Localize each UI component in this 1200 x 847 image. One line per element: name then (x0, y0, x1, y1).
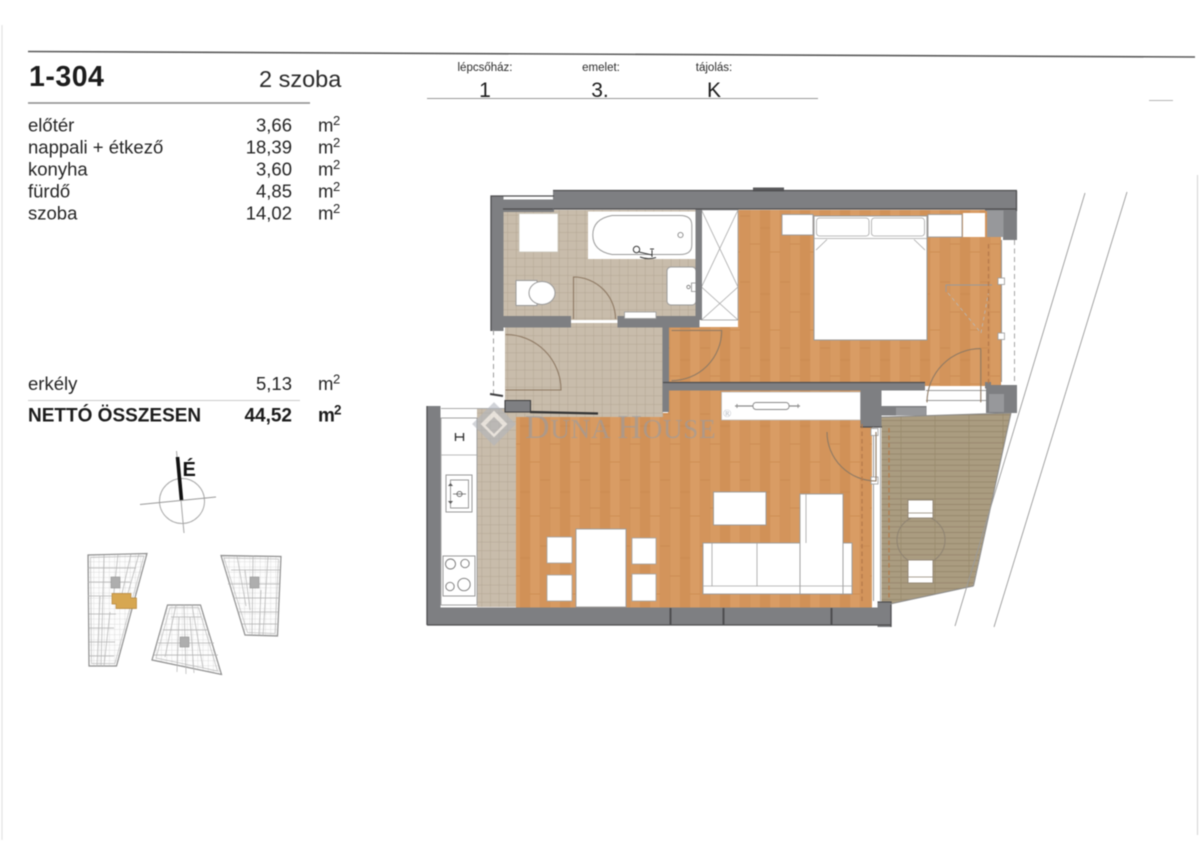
svg-text:m: m (318, 203, 333, 224)
svg-text:5,13: 5,13 (256, 373, 292, 394)
svg-text:18,39: 18,39 (246, 137, 292, 158)
svg-text:2: 2 (333, 372, 340, 387)
svg-text:3,66: 3,66 (256, 115, 292, 136)
svg-text:emelet:: emelet: (582, 62, 620, 74)
svg-text:tájolás:: tájolás: (696, 62, 732, 74)
svg-text:m: m (318, 159, 333, 180)
svg-text:44,52: 44,52 (244, 406, 292, 427)
svg-text:erkély: erkély (28, 373, 78, 394)
svg-text:DUNA HOUSE: DUNA HOUSE (525, 409, 716, 446)
svg-text:előtér: előtér (28, 115, 74, 136)
svg-text:1-304: 1-304 (29, 61, 104, 93)
svg-text:3,60: 3,60 (256, 159, 292, 180)
svg-text:É: É (183, 458, 196, 481)
svg-text:m: m (318, 373, 333, 394)
svg-text:konyha: konyha (28, 159, 88, 180)
svg-text:2: 2 (333, 135, 340, 150)
svg-text:nappali + étkező: nappali + étkező (28, 137, 163, 158)
svg-text:szoba: szoba (28, 203, 78, 224)
svg-text:fürdő: fürdő (28, 181, 70, 202)
svg-text:NETTÓ ÖSSZESEN: NETTÓ ÖSSZESEN (28, 405, 201, 427)
svg-text:14,02: 14,02 (246, 203, 292, 224)
svg-text:m: m (318, 137, 333, 158)
svg-text:2: 2 (333, 201, 340, 216)
svg-text:m: m (318, 115, 333, 136)
svg-text:2: 2 (333, 113, 340, 128)
svg-text:m: m (318, 406, 335, 427)
svg-text:m: m (318, 181, 333, 202)
svg-text:®: ® (723, 408, 731, 420)
svg-text:lépcsőház:: lépcsőház: (458, 62, 513, 74)
svg-text:2: 2 (333, 179, 340, 194)
svg-text:2: 2 (333, 157, 340, 172)
svg-text:2: 2 (334, 403, 342, 418)
svg-text:2 szoba: 2 szoba (259, 66, 342, 92)
svg-text:4,85: 4,85 (256, 181, 292, 202)
